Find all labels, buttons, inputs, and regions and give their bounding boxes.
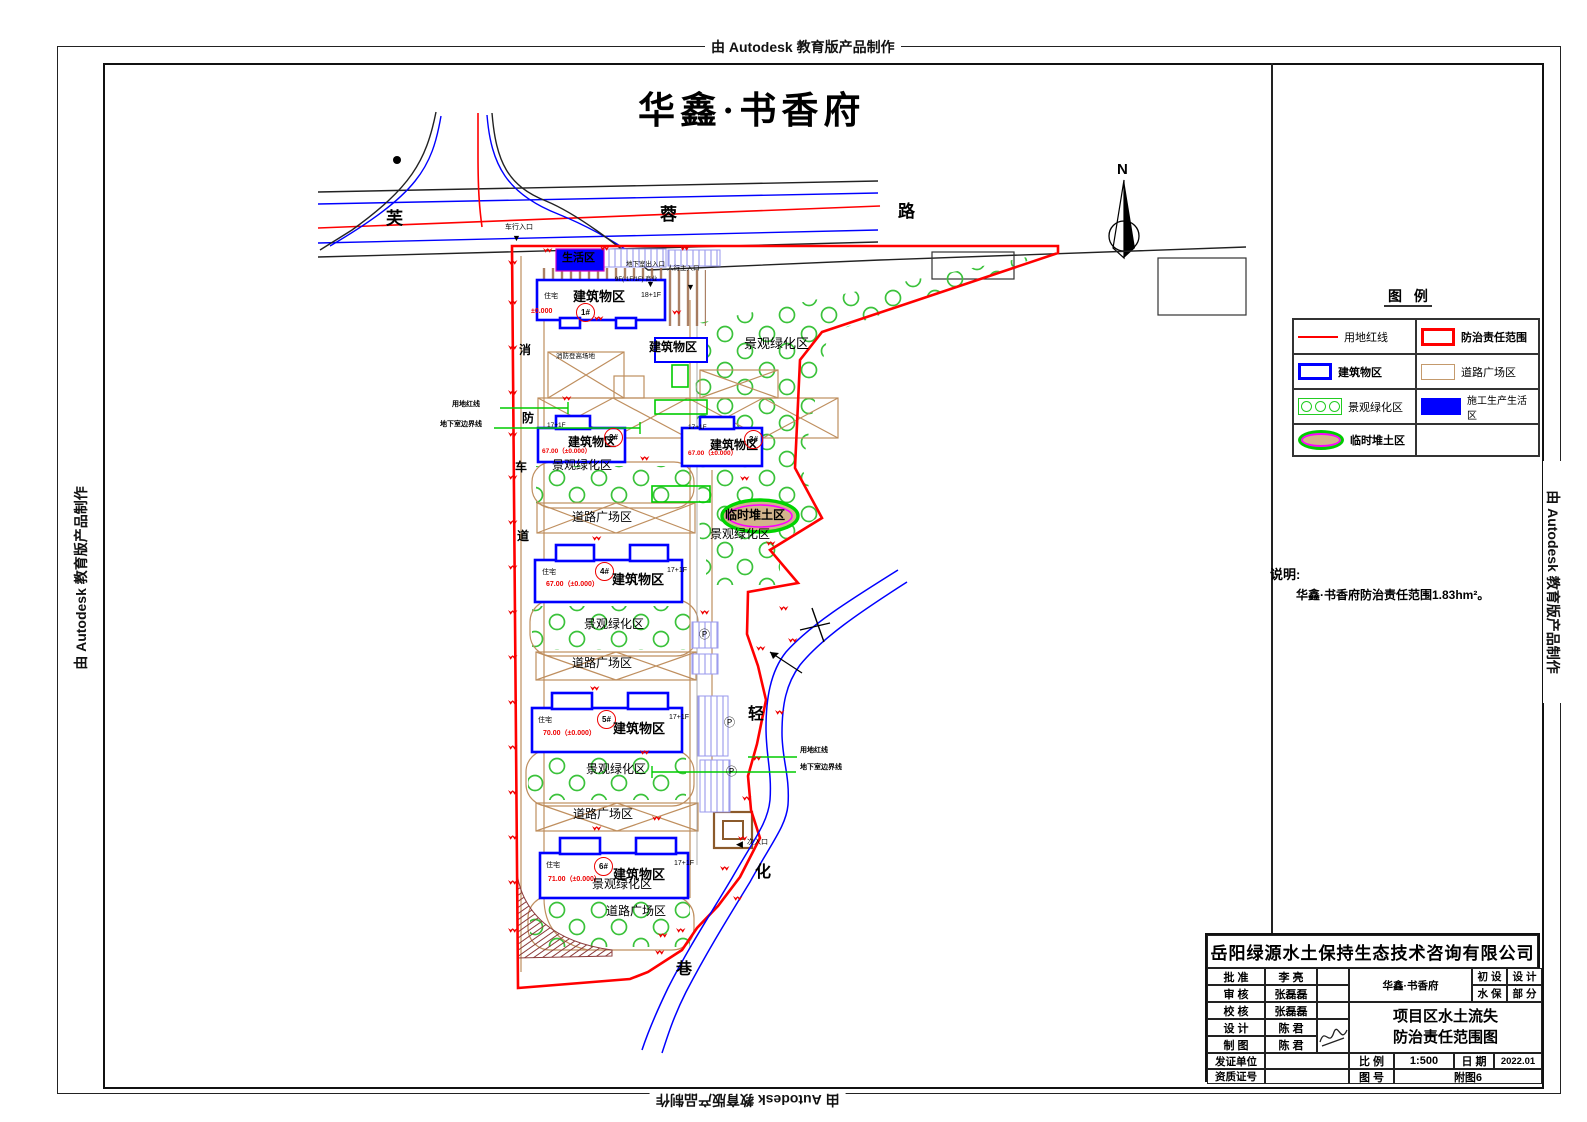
scope-swatch-icon [1421,328,1455,346]
drawing-name-cell: 项目区水土流失 防治责任范围图 [1349,1002,1542,1053]
figno-value: 附图6 [1394,1069,1542,1084]
vehicle-entrance-label: 车行入口 [505,224,533,231]
building1-use: 住宅 [544,293,558,300]
green-area-label-5: 景观绿化区 [586,763,646,776]
parking-symbol-2: Ⓟ [724,718,735,730]
pedestrian-entrance-label: 人行主入口 [667,266,700,273]
building5-floors: 17+1F [669,714,689,721]
legend-item-building: 建筑物区 [1293,354,1416,389]
draft-name: 陈 君 [1265,1036,1317,1053]
basement-entrance-label: 地下室出入口 [626,262,665,269]
stage-11: 部 分 [1507,985,1542,1002]
draft-label: 制 图 [1207,1036,1265,1053]
legend-item-construction: 施工生产生活区 [1416,389,1539,424]
qual-label: 资质证号 [1207,1069,1265,1084]
legend-item-empty [1416,424,1539,456]
plaza-label-4: 道路广场区 [606,905,666,918]
building3-floors: 17+1F [688,425,707,432]
legend-item-plaza: 道路广场区 [1416,354,1539,389]
building2-floors: 17+1F [547,423,566,430]
building6-number: 6# [594,857,613,876]
lane-char-2: 化 [755,858,771,882]
legend-label: 防治责任范围 [1461,329,1527,345]
legend-label: 用地红线 [1344,329,1388,345]
date-value: 2022.01 [1494,1053,1542,1069]
legend-item-soil: 临时堆土区 [1293,424,1416,456]
review-name: 张磊磊 [1265,985,1317,1002]
plaza-label-1: 道路广场区 [572,511,632,524]
green-area-label-ne: 景观绿化区 [744,337,809,351]
drawing-name-line1: 项目区水土流失 [1393,1007,1498,1027]
title-block: 岳阳绿源水土保持生态技术咨询有限公司 批 准 李 亮 审 核 张磊磊 校 核 张… [1205,933,1540,1082]
plaza-label-2: 道路广场区 [572,657,632,670]
building-swatch-icon [1298,363,1332,380]
fire-lane-char-2: 防 [522,412,534,425]
legend-label: 道路广场区 [1461,364,1516,380]
approve-name: 李 亮 [1265,968,1317,985]
building1-number: 1# [576,303,595,322]
legend-item-red-line: 用地红线 [1293,319,1416,354]
fire-lane-char-3: 车 [515,461,527,474]
project-name: 华鑫·书香府 [1349,968,1472,1002]
furong-road-char-2: 蓉 [660,200,677,225]
building4-zone-label: 建筑物区 [612,573,664,587]
secondary-entrance-triangle-icon: ◀ [736,839,743,850]
legend-label: 施工生产生活区 [1467,392,1534,422]
parking-symbol-1: Ⓟ [699,630,710,642]
review-sign [1317,985,1349,1002]
basement-line-leader-left: 地下室边界线 [440,421,482,428]
figno-label: 图 号 [1349,1069,1394,1084]
legend-table: 用地红线 防治责任范围 建筑物区 道路广场区 景观绿化区 施工生产生活区 临时堆… [1292,318,1540,457]
legend-item-green: 景观绿化区 [1293,389,1416,424]
drawing-sheet: 由 Autodesk 教育版产品制作 由 Autodesk 教育版产品制作 由 … [0,0,1587,1122]
cert-label: 发证单位 [1207,1053,1265,1069]
red-line-leader-right: 用地红线 [800,747,828,754]
building2-elevation: 67.00（±0.000） [542,449,591,456]
building3-number: 3# [744,430,763,449]
design-label: 设 计 [1207,1019,1265,1036]
building4-floors: 17+1F [667,567,687,574]
soil-swatch-icon [1298,430,1344,450]
red-line-swatch-icon [1298,336,1338,338]
building1-floors: 18+1F [641,292,661,299]
approve-label: 批 准 [1207,968,1265,985]
building5-use: 住宅 [538,717,552,724]
parking-symbol-3: Ⓟ [726,767,737,779]
check-label: 校 核 [1207,1002,1265,1019]
plaza-swatch-icon [1421,364,1455,380]
furong-road-char-3: 路 [898,197,915,222]
qual-value [1265,1069,1349,1084]
green-swatch-icon [1298,398,1342,415]
building5-zone-label: 建筑物区 [613,722,665,736]
building1-elevation: ±0.000 [531,308,552,315]
signature-scribble [1318,1022,1348,1050]
green-area-label-4: 景观绿化区 [584,618,644,631]
fire-lane-char-1: 消 [519,344,531,357]
cert-value [1265,1053,1349,1069]
building2-number: 2# [604,428,623,447]
legend-title: 图 例 [1388,286,1432,306]
green-area-label-6: 景观绿化区 [592,878,652,891]
lane-char-1: 轻 [748,700,764,724]
scale-value: 1:500 [1394,1053,1454,1069]
commercial-building-zone-label: 建筑物区 [649,341,697,354]
basement-line-leader-right: 地下室边界线 [800,764,842,771]
fire-lane-char-4: 道 [517,530,529,543]
building6-floors: 17+1F [674,860,694,867]
company-name: 岳阳绿源水土保持生态技术咨询有限公司 [1207,935,1538,968]
construction-swatch-icon [1421,398,1461,415]
drawing-name-line2: 防治责任范围图 [1393,1028,1498,1048]
legend-label: 临时堆土区 [1350,432,1405,448]
green-area-label-3: 景观绿化区 [710,528,770,541]
scale-label: 比 例 [1349,1053,1394,1069]
approve-sign [1317,968,1349,985]
check-name: 张磊磊 [1265,1002,1317,1019]
furong-road-char-1: 芙 [386,204,403,229]
design-name: 陈 君 [1265,1019,1317,1036]
stage-00: 初 设 [1472,968,1507,985]
building3-elevation: 67.00（±0.000） [688,451,737,458]
red-line-leader-left: 用地红线 [452,401,480,408]
date-label: 日 期 [1454,1053,1494,1069]
temp-soil-label: 临时堆土区 [725,509,785,522]
building5-elevation: 70.00（±0.000） [543,730,596,737]
commercial-note-label: 9F(-1F/1F) 商业 [615,277,657,283]
living-area-label: 生活区 [562,253,595,265]
check-sign [1317,1002,1349,1019]
lane-char-3: 巷 [676,955,692,979]
secondary-entrance-label: 次入口 [747,839,768,846]
stage-01: 设 计 [1507,968,1542,985]
plaza-label-3: 道路广场区 [573,808,633,821]
legend-label: 建筑物区 [1338,364,1382,380]
green-area-label-2: 景观绿化区 [552,459,612,472]
fire-pad-label: 消防登高场地 [556,354,595,361]
notes-body: 华鑫·书香府防治责任范围1.83hm²。 [1296,586,1489,603]
stage-10: 水 保 [1472,985,1507,1002]
building4-elevation: 67.00（±0.000） [546,581,599,588]
notes-title: 说明: [1270,564,1300,583]
building6-use: 住宅 [546,862,560,869]
legend-label: 景观绿化区 [1348,399,1403,415]
review-label: 审 核 [1207,985,1265,1002]
signature-cell [1317,1019,1349,1053]
building4-use: 住宅 [542,569,556,576]
vehicle-entrance-triangle-icon: ▼ [512,233,521,243]
legend-item-scope: 防治责任范围 [1416,319,1539,354]
legend-title-underline [1384,305,1432,307]
pedestrian-entrance-triangle-icon: ▼ [686,282,695,292]
building1-zone-label: 建筑物区 [573,290,625,304]
